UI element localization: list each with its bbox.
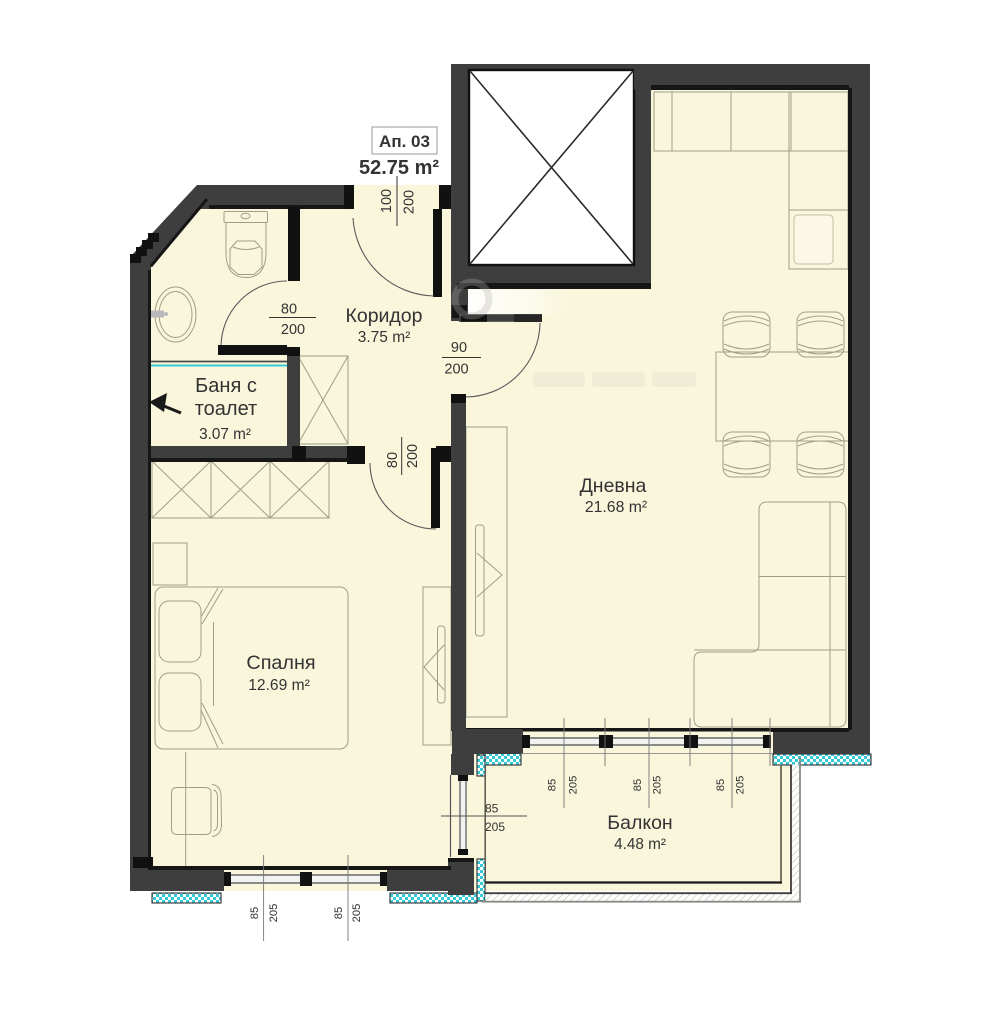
svg-text:200: 200 <box>405 444 421 468</box>
svg-text:205: 205 <box>652 776 664 795</box>
svg-text:200: 200 <box>402 190 418 214</box>
svg-text:12.69 m²: 12.69 m² <box>248 677 310 694</box>
svg-text:85: 85 <box>547 779 559 791</box>
svg-text:Дневна: Дневна <box>580 475 647 497</box>
svg-text:205: 205 <box>568 776 580 795</box>
svg-text:200: 200 <box>444 362 468 378</box>
svg-text:85: 85 <box>715 779 727 791</box>
svg-text:90: 90 <box>451 340 467 356</box>
svg-text:21.68 m²: 21.68 m² <box>585 499 647 516</box>
svg-text:205: 205 <box>268 904 280 923</box>
svg-text:Балкон: Балкон <box>607 812 672 834</box>
svg-text:80: 80 <box>281 302 297 318</box>
svg-text:Спалня: Спалня <box>246 652 315 674</box>
svg-text:205: 205 <box>485 820 505 834</box>
svg-text:Ап. 03: Ап. 03 <box>379 132 430 151</box>
svg-text:52.75 m²: 52.75 m² <box>359 157 439 179</box>
svg-text:205: 205 <box>735 776 747 795</box>
svg-text:85: 85 <box>333 907 345 919</box>
svg-text:100: 100 <box>379 189 395 213</box>
svg-text:85: 85 <box>485 802 499 816</box>
svg-text:85: 85 <box>632 779 644 791</box>
svg-text:3.07 m²: 3.07 m² <box>199 426 251 443</box>
svg-text:80: 80 <box>385 452 401 468</box>
svg-text:85: 85 <box>249 907 261 919</box>
svg-text:200: 200 <box>281 322 305 338</box>
svg-text:Коридор: Коридор <box>345 305 422 327</box>
svg-text:4.48 m²: 4.48 m² <box>614 836 666 853</box>
svg-text:тоалет: тоалет <box>195 398 257 420</box>
svg-text:Баня с: Баня с <box>195 375 257 397</box>
svg-text:205: 205 <box>351 904 363 923</box>
svg-text:3.75 m²: 3.75 m² <box>358 329 411 346</box>
